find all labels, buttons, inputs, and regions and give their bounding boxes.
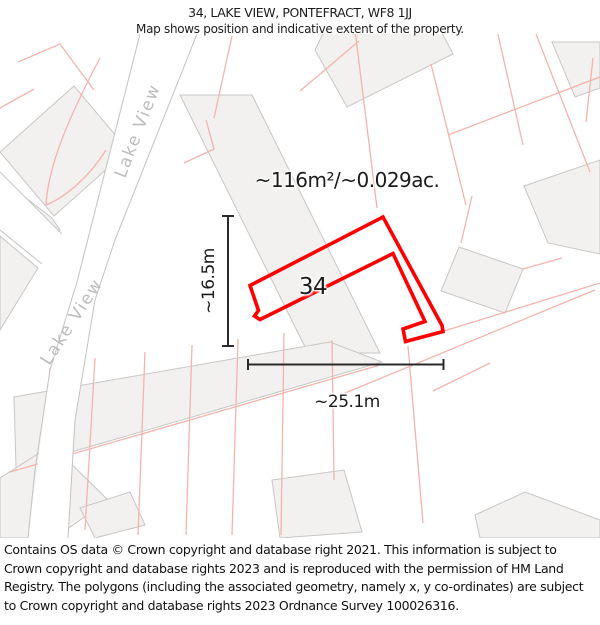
building bbox=[441, 247, 523, 313]
building bbox=[272, 470, 362, 538]
height-dimension-label: ~16.5m bbox=[199, 248, 219, 314]
header: 34, LAKE VIEW, PONTEFRACT, WF8 1JJ Map s… bbox=[0, 0, 600, 34]
height-dimension-line bbox=[222, 216, 234, 346]
area-label: ~116m²/~0.029ac. bbox=[255, 168, 440, 192]
page-subtitle: Map shows position and indicative extent… bbox=[0, 20, 600, 36]
building bbox=[552, 42, 600, 97]
title-plan-page: Lake View Lake View ~116m²/~0.029ac. 34 … bbox=[0, 0, 600, 625]
plot-number-label: 34 bbox=[299, 274, 327, 300]
page-title: 34, LAKE VIEW, PONTEFRACT, WF8 1JJ bbox=[0, 0, 600, 20]
width-dimension-label: ~25.1m bbox=[314, 392, 380, 412]
copyright-notice: Contains OS data © Crown copyright and d… bbox=[0, 538, 600, 625]
building bbox=[475, 492, 600, 538]
building bbox=[524, 160, 600, 254]
